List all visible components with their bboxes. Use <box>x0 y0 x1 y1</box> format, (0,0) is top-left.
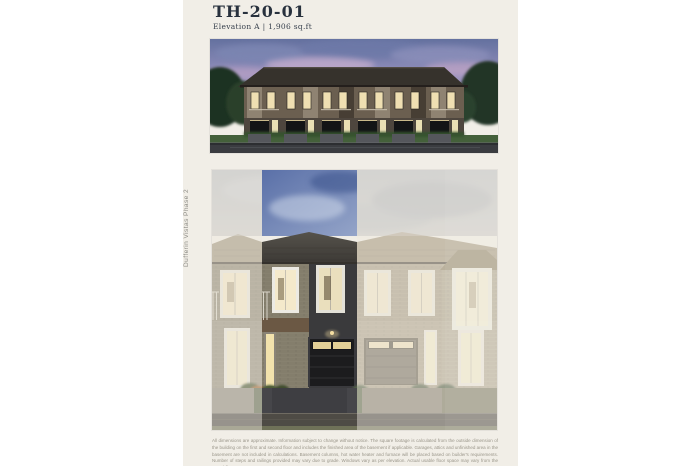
streetscape-scene <box>210 39 498 153</box>
wood-trim-band <box>262 318 309 332</box>
page-title: TH-20-01 <box>213 2 503 21</box>
vertical-project-label: Dufferin Vistas Phase 2 <box>179 168 194 288</box>
highlight-garage <box>308 330 356 387</box>
road <box>210 142 498 153</box>
elevation-scene <box>212 170 497 430</box>
page-header: TH-20-01 Elevation A | 1,906 sq.ft <box>213 2 503 31</box>
townhome-row <box>238 67 468 135</box>
elevation-rendering-image <box>212 170 497 430</box>
disclaimer-text: All dimensions are approximate. Informat… <box>212 438 498 466</box>
brochure-page: TH-20-01 Elevation A | 1,906 sq.ft <box>0 0 700 466</box>
page-subtitle: Elevation A | 1,906 sq.ft <box>213 22 503 31</box>
streetscape-rendering-image <box>210 39 498 153</box>
